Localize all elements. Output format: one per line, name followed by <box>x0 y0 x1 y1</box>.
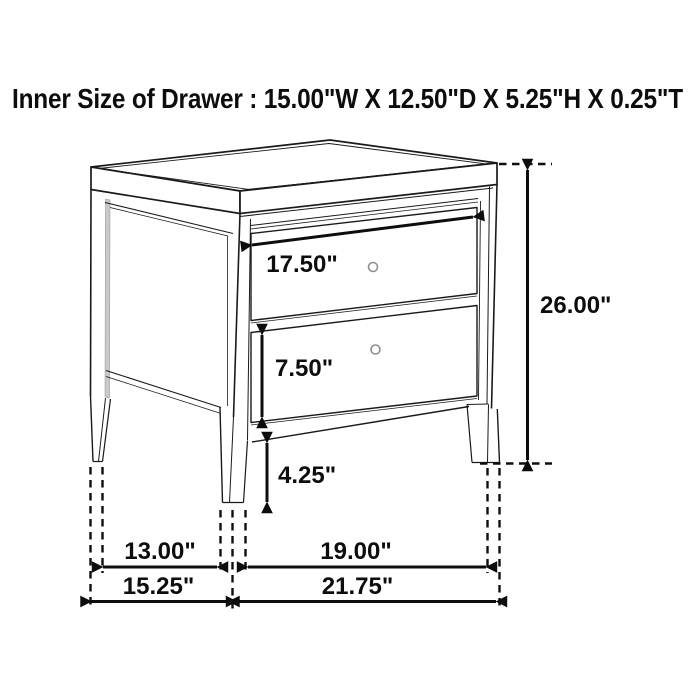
overall-width-label: 21.75" <box>322 573 393 600</box>
overall-height-label: 26.00" <box>540 292 611 319</box>
leg-height-label: 4.25" <box>278 462 336 489</box>
page-title: Inner Size of Drawer : 15.00"W X 12.50"D… <box>12 83 683 114</box>
drawer-face-height-label: 7.50" <box>275 355 333 382</box>
drawer-width-label: 17.50" <box>266 251 337 278</box>
front-right-leg <box>467 404 500 463</box>
drawer-2-knob-icon <box>371 345 380 354</box>
overall-depth-label: 15.25" <box>123 573 194 600</box>
dimension-diagram: Inner Size of Drawer : 15.00"W X 12.50"D… <box>0 0 700 700</box>
inner-width-label: 19.00" <box>320 538 391 565</box>
drawer-1-knob-icon <box>369 263 378 272</box>
inner-depth-label: 13.00" <box>124 538 195 565</box>
front-left-leg <box>220 408 248 503</box>
nightstand-drawing <box>91 140 500 503</box>
nightstand-dimension-drawing: Inner Size of Drawer : 15.00"W X 12.50"D… <box>0 0 700 700</box>
side-panel <box>91 190 241 418</box>
rear-left-leg <box>91 396 111 462</box>
drawer-front-face <box>240 185 497 443</box>
nightstand-top <box>91 140 497 214</box>
